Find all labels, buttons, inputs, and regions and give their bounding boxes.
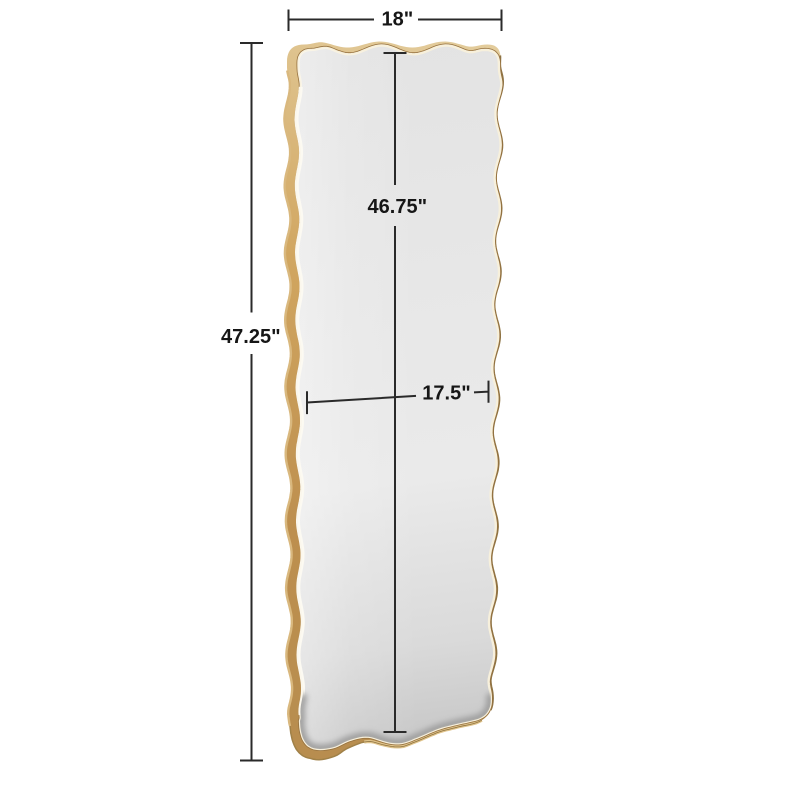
svg-text:47.25": 47.25" xyxy=(221,326,281,348)
svg-text:46.75": 46.75" xyxy=(368,196,428,218)
svg-text:17.5": 17.5" xyxy=(422,383,470,405)
svg-text:18": 18" xyxy=(382,9,414,31)
